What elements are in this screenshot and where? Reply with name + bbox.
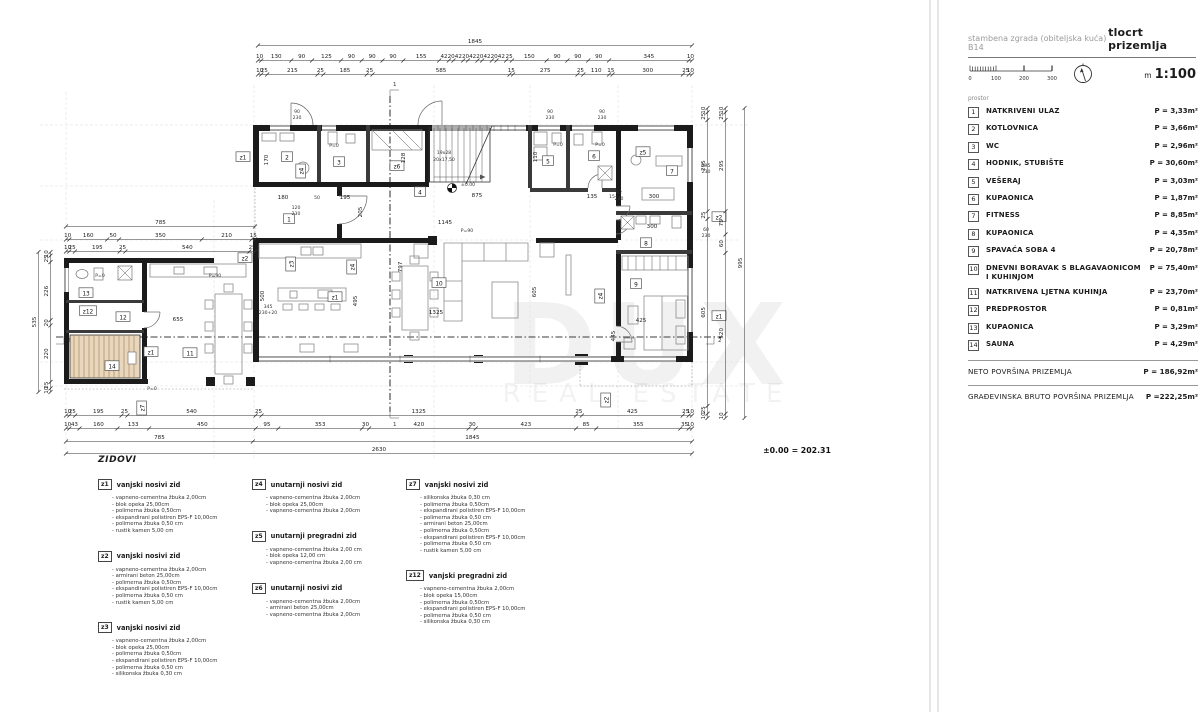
dim-label: 995: [738, 257, 744, 268]
sink: [301, 247, 311, 255]
room-marker-7: 7: [670, 169, 674, 175]
dim-label: 42: [469, 54, 476, 60]
wall-layer: - blok opeka 15,00cm: [420, 593, 554, 600]
wall-type-item: z4unutarnji nosivi zid- vapneno-cementna…: [252, 479, 400, 515]
svg-text:605: 605: [532, 286, 538, 297]
svg-text:P=90: P=90: [461, 228, 474, 234]
room-number: 5: [968, 177, 979, 188]
dining-table: [402, 266, 428, 330]
wall-layer: - vapneno-cementna žbuka 2,00cm: [266, 495, 400, 502]
wall-marker-z4: z4: [598, 292, 604, 299]
dim-label: 420: [413, 422, 424, 428]
dim-label: 10: [719, 412, 725, 420]
dim-label: 10: [701, 106, 707, 114]
dim-label: 42: [498, 54, 505, 60]
room-name: KUPAONICA: [986, 194, 1154, 203]
west-wall-upper: [253, 125, 259, 186]
room-name: WC: [986, 142, 1154, 151]
dim-label: 25: [119, 245, 127, 251]
neto-row: NETO POVRŠINA PRIZEMLJA P = 186,92m²: [968, 360, 1198, 376]
svg-text:797: 797: [398, 261, 404, 272]
svg-text:230: 230: [615, 196, 624, 202]
svg-text:230: 230: [292, 211, 301, 217]
dim-top-total: 1845: [256, 39, 694, 48]
dim-label: 295: [701, 160, 707, 171]
dim-left-col: 1025226202202510: [44, 250, 53, 394]
annex-south-wall: [64, 379, 148, 384]
room-area: P = 8,85m²: [1154, 211, 1198, 220]
room-area: P = 2,96m²: [1154, 142, 1198, 151]
wall-type-name: unutarnji nosivi zid: [271, 481, 343, 489]
rooms-list: 1NATKRIVENI ULAZP = 3,33m²2KOTLOVNICAP =…: [968, 107, 1198, 351]
dim-label: 10: [256, 54, 264, 60]
dim-label: 25: [69, 409, 77, 415]
svg-text:170: 170: [264, 154, 270, 165]
room-area: P = 3,66m²: [1154, 124, 1198, 133]
svg-text:P=90: P=90: [209, 273, 222, 279]
dim-label: 110: [591, 68, 602, 74]
wall-type-name: vanjski nosivi zid: [425, 481, 489, 489]
dim-label: 300: [642, 68, 653, 74]
room-marker-2: 2: [285, 155, 289, 161]
svg-text:90: 90: [547, 109, 553, 115]
drawing-title: tlocrt prizemlja: [1108, 26, 1196, 52]
dim-label: 90: [348, 54, 356, 60]
svg-text:230: 230: [546, 115, 555, 121]
dim-label: 785: [154, 435, 165, 441]
room-number: 7: [968, 211, 979, 222]
dim-label: 520: [719, 328, 725, 339]
dim-label: 1845: [468, 39, 483, 45]
dim-label: 345: [644, 54, 655, 60]
dim-bottom-row-2: 1043160133450953533042030423853553510: [64, 422, 694, 431]
dim-label: 605: [701, 307, 707, 318]
svg-text:230: 230: [598, 115, 607, 121]
wall-type-code: z3: [98, 622, 112, 633]
dim-bottom-row-3: 7851845: [64, 435, 694, 444]
wall-layer: - polimerna žbuka 0,50 cm: [112, 593, 246, 600]
dim-label: 10: [44, 386, 50, 394]
drawing-sheet: { "title_block": { "project": "stambena …: [0, 0, 1200, 712]
room-marker-11: 11: [186, 351, 194, 357]
wall-x618-b: [616, 220, 621, 240]
sauna-heater: [128, 352, 136, 364]
dim-label: 30: [362, 422, 370, 428]
wall-layer: - armirani beton 25,00cm: [266, 605, 400, 612]
washer: [534, 132, 547, 145]
dim-label: 195: [92, 245, 103, 251]
dim-label: 25: [255, 409, 263, 415]
dim-label: 353: [315, 422, 326, 428]
column: [206, 377, 215, 386]
sauna-benches: [70, 335, 140, 378]
room-schedule-header: prostor: [968, 96, 1198, 102]
wall-layer: - silikonska žbuka 0,30 cm: [420, 619, 554, 626]
svg-text:500: 500: [260, 290, 266, 301]
dim-label: 540: [182, 245, 193, 251]
dim-label: 60: [719, 240, 725, 248]
wall-type-code: z6: [252, 583, 266, 594]
room-marker-12: 12: [119, 315, 127, 321]
wardrobe: [622, 256, 688, 270]
walls-legend-title: ZIDOVI: [98, 455, 568, 465]
room-name: SAUNA: [986, 340, 1154, 349]
bar-stool: [315, 304, 324, 310]
wall-layer: - vapneno-cementna žbuka 2,00cm: [112, 495, 246, 502]
room-marker-4: 4: [418, 190, 422, 196]
svg-text:P=0: P=0: [147, 386, 157, 392]
room-number: 13: [968, 323, 979, 334]
dim-label: 25: [719, 112, 725, 120]
corridor-south-wall: [536, 238, 618, 243]
wall-layer: - armirani beton 25,00cm: [420, 521, 554, 528]
wall-type-item: z3vanjski nosivi zid- vapneno-cementna ž…: [98, 622, 246, 678]
dim-label: 1325: [412, 409, 427, 415]
room-number: 6: [968, 194, 979, 205]
wall-layer: - blok opeka 12,00 cm: [266, 553, 400, 560]
wall-type-code: z4: [252, 479, 266, 490]
dim-label: 10: [701, 412, 707, 420]
svg-text:60: 60: [703, 227, 709, 233]
dim-label: 15: [508, 68, 516, 74]
wall-marker-z4: z4: [299, 167, 305, 174]
partition-13-12: [66, 300, 144, 303]
room-name: HODNIK, STUBIŠTE: [986, 159, 1150, 168]
room-row: 14SAUNAP = 4,29m²: [968, 340, 1198, 351]
bath8-south-wall: [616, 250, 692, 254]
svg-text:90: 90: [599, 109, 605, 115]
svg-text:345: 345: [264, 304, 273, 310]
bruto-row: GRAĐEVINSKA BRUTO POVRŠINA PRIZEMLJA P =…: [968, 385, 1198, 401]
dim-label: 295: [719, 160, 725, 171]
dim-label: 185: [340, 68, 351, 74]
wall-type-code: z7: [406, 479, 420, 490]
wall-layer: - polimerna žbuka 0,50cm: [420, 600, 554, 607]
wall-layer: - ekspandirani polistiren EPS-F 10,00cm: [112, 586, 246, 593]
dim-label: 585: [436, 68, 447, 74]
stairs-label-2: 20x17,50: [433, 157, 455, 163]
walls-legend-col-1: z1vanjski nosivi zid- vapneno-cementna ž…: [98, 479, 246, 694]
wall-type-name: vanjski nosivi zid: [117, 624, 181, 632]
dim-label: 215: [287, 68, 298, 74]
dim-label: 275: [540, 68, 551, 74]
svg-text:425: 425: [636, 318, 647, 324]
dim-label: 90: [389, 54, 397, 60]
dim-label: 535: [32, 316, 38, 327]
dim-label: 10: [687, 409, 695, 415]
room-name: FITNESS: [986, 211, 1154, 220]
wall-type-code: z1: [98, 479, 112, 490]
wall-type-item: z12vanjski pregradni zid- vapneno-cement…: [406, 570, 554, 626]
title-block: stambena zgrada (obiteljska kuća) B14 tl…: [968, 26, 1196, 85]
room-area: P = 3,29m²: [1154, 323, 1198, 332]
dim-label: 90: [369, 54, 377, 60]
room-area: P = 0,81m²: [1154, 305, 1198, 314]
wall-layer: - rustik kamen 5,00 cm: [420, 548, 554, 555]
dim-label: 133: [128, 422, 139, 428]
dim-label: 25: [701, 406, 707, 414]
level-value: ±0.00: [461, 182, 475, 188]
wall-type-name: vanjski pregradni zid: [429, 572, 507, 580]
wall-layer: - vapneno-cementna žbuka 2,00cm: [266, 612, 400, 619]
fitness-bench: [656, 156, 682, 166]
scale-tick-200: 200: [1019, 76, 1029, 82]
room-number: 2: [968, 124, 979, 135]
svg-text:655: 655: [173, 317, 184, 323]
wall-x618-c: [616, 254, 621, 326]
watermark: DUX REAL ESTATE: [503, 281, 794, 411]
room-area: P = 23,70m²: [1150, 288, 1198, 297]
room-number: 14: [968, 340, 979, 351]
project-title: stambena zgrada (obiteljska kuća) B14: [968, 34, 1108, 52]
room-area: P = 30,60m²: [1150, 159, 1198, 168]
dim-wing-row-b: 10251952554025: [64, 245, 257, 254]
dim-label: 25: [577, 68, 585, 74]
room-name: KOTLOVNICA: [986, 124, 1154, 133]
wall-marker-z6: z6: [394, 164, 401, 170]
annex-east-wall-a: [142, 258, 147, 312]
wall-layer: - silikonska žbuka 0,30 cm: [420, 495, 554, 502]
armchair: [540, 243, 554, 257]
wall-layer: - polimerna žbuka 0,50cm: [420, 502, 554, 509]
wall-type-code: z12: [406, 570, 424, 581]
dim-label: 25: [701, 112, 707, 120]
dim-label: 160: [93, 422, 104, 428]
dim-label: 75: [719, 219, 725, 227]
svg-text:195: 195: [340, 195, 351, 201]
section-1-top: 1: [393, 82, 397, 88]
svg-text:50: 50: [314, 195, 320, 201]
svg-text:90: 90: [294, 109, 300, 115]
wall-layer: - armirani beton 25,00cm: [112, 573, 246, 580]
north-arrow-icon: [1072, 63, 1094, 85]
svg-text:120: 120: [292, 205, 301, 211]
stairs: 19x28 20x17,50: [429, 126, 492, 184]
dim-label: 15: [607, 68, 615, 74]
partition-3-closet: [366, 125, 370, 182]
wall-marker-z12: z12: [83, 309, 94, 315]
wall-type-item: z7vanjski nosivi zid- silikonska žbuka 0…: [406, 479, 554, 554]
dim-label: 785: [155, 220, 166, 226]
wc: [672, 216, 681, 228]
partition-2-3: [317, 125, 321, 182]
room-area: P = 4,29m²: [1154, 340, 1198, 349]
svg-text:92: 92: [616, 190, 622, 196]
dim-wing-total: 785: [64, 220, 257, 229]
wall-marker-z1: z1: [332, 295, 339, 301]
dim-label: 25: [506, 54, 514, 60]
dim-label: 423: [521, 422, 532, 428]
wall-layer: - polimerna žbuka 0,50cm: [112, 580, 246, 587]
dim-label: 355: [633, 422, 644, 428]
wall-layer: - vapneno-cementna žbuka 2,00cm: [112, 638, 246, 645]
bar-stool: [299, 304, 308, 310]
walls-legend-col-2: z4unutarnji nosivi zid- vapneno-cementna…: [252, 479, 400, 634]
pillar: [428, 236, 437, 245]
dim-label: 50: [110, 233, 118, 239]
dim-label: 90: [574, 54, 582, 60]
planter: [300, 344, 314, 352]
wall-layer: - vapneno-cementna žbuka 2,00cm: [266, 599, 400, 606]
room-number: 12: [968, 305, 979, 316]
wall-layer: - ekspandirani polistiren EPS-F 10,00cm: [420, 606, 554, 613]
wall-type-code: z5: [252, 531, 266, 542]
wall-marker-z5: z5: [640, 150, 647, 156]
wall-layer: - polimerna žbuka 0,50 cm: [420, 515, 554, 522]
room-name: DNEVNI BORAVAK S BLAGAVAONICOM I KUHINJO…: [986, 264, 1150, 282]
room-name: VEŠERAJ: [986, 177, 1154, 186]
dim-label: 10: [719, 106, 725, 114]
scale-tick-300: 300: [1047, 76, 1057, 82]
room-row: 4HODNIK, STUBIŠTEP = 30,60m²: [968, 159, 1198, 170]
room-number: 4: [968, 159, 979, 170]
wall-layer: - ekspandirani polistiren EPS-F 10,00cm: [420, 508, 554, 515]
scale-tick-100: 100: [991, 76, 1001, 82]
dim-label: 1845: [465, 435, 480, 441]
closet: [372, 130, 422, 150]
wall-layer: - polimerna žbuka 0,50cm: [420, 528, 554, 535]
column: [246, 377, 255, 386]
dim-label: 540: [186, 409, 197, 415]
room-number: 11: [968, 288, 979, 299]
wall-marker-z2: z2: [604, 396, 610, 403]
room-row: 13KUPAONICAP = 3,29m²: [968, 323, 1198, 334]
svg-text:445: 445: [611, 330, 617, 341]
wall-type-item: z5unutarnji pregradni zid- vapneno-cemen…: [252, 531, 400, 567]
room-row: 1NATKRIVENI ULAZP = 3,33m²: [968, 107, 1198, 118]
stairs-label-1: 19x28: [437, 150, 451, 156]
dim-label: 25: [317, 68, 325, 74]
svg-text:230+20: 230+20: [259, 310, 278, 316]
room-name: KUPAONICA: [986, 229, 1154, 238]
svg-text:300: 300: [649, 194, 660, 200]
room-marker-9: 9: [634, 282, 638, 288]
room-number: 9: [968, 246, 979, 257]
dim-label: 10: [687, 54, 695, 60]
dim-label: 2630: [372, 447, 387, 453]
dim-label: 195: [93, 409, 104, 415]
dim-label: 15: [250, 233, 258, 239]
dim-label: 130: [271, 54, 282, 60]
walls-legend-col-3: z7vanjski nosivi zid- silikonska žbuka 0…: [406, 479, 554, 642]
room-area: P = 3,33m²: [1154, 107, 1198, 116]
room-name: NATKRIVENI ULAZ: [986, 107, 1154, 116]
wall-marker-z7: z7: [140, 404, 146, 411]
west-wall-lower: [253, 238, 259, 362]
dim-label: 220: [44, 348, 50, 359]
wall-layer: - rustik kamen 5,00 cm: [112, 528, 246, 535]
dim-label: 10: [687, 68, 695, 74]
svg-text:128: 128: [401, 152, 407, 163]
wall-layer: - polimerna žbuka 0,50cm: [112, 651, 246, 658]
scale-bar: 0 100 200 300: [968, 65, 1064, 83]
svg-text:180: 180: [278, 195, 289, 201]
dim-label: 20: [44, 319, 50, 327]
sink: [313, 247, 323, 255]
section-1-bottom: 1: [393, 422, 397, 428]
dim-top-row-b: 1013090125909090155422042204220422042251…: [256, 54, 694, 63]
porch-east-wall-b: [337, 224, 342, 238]
room-row: 11NATKRIVENA LJETNA KUHINJAP = 23,70m²: [968, 288, 1198, 299]
svg-text:P=0: P=0: [95, 273, 105, 279]
bar-stool: [283, 304, 292, 310]
svg-text:P=0: P=0: [553, 142, 563, 148]
wall-layer: - rustik kamen 5,00 cm: [112, 600, 246, 607]
room-name: SPAVAĆA SOBA 4: [986, 246, 1150, 255]
room-row: 6KUPAONICAP = 1,87m²: [968, 194, 1198, 205]
dim-label: 10: [64, 233, 72, 239]
wall-type-name: unutarnji nosivi zid: [271, 584, 343, 592]
svg-text:300: 300: [647, 224, 658, 230]
dim-label: 25: [44, 255, 50, 263]
dim-label: 25: [121, 409, 129, 415]
scale-tick-0: 0: [968, 76, 971, 82]
wall-marker-z3: z3: [289, 260, 295, 267]
room-marker-1: 1: [287, 217, 291, 223]
dim-label: 350: [155, 233, 166, 239]
wall-layer: - vapneno-cementna žbuka 2,00cm: [112, 567, 246, 574]
neto-area: P = 186,92m²: [1143, 367, 1198, 376]
wc: [328, 132, 337, 144]
dim-label: 25: [249, 245, 257, 251]
svg-text:230: 230: [293, 115, 302, 121]
annex-north-wall: [64, 258, 214, 263]
wall-marker-z1: z1: [240, 155, 247, 161]
wall-5-6-south-a: [530, 188, 588, 192]
wall-type-item: z1vanjski nosivi zid- vapneno-cementna ž…: [98, 479, 246, 535]
dim-label: 226: [44, 285, 50, 296]
dim-label: 10: [687, 422, 695, 428]
room-marker-10: 10: [435, 281, 443, 287]
room-number: 1: [968, 107, 979, 118]
bar-stool: [331, 304, 340, 310]
dim-label: 90: [298, 54, 306, 60]
svg-text:205: 205: [358, 206, 364, 217]
room-marker-14: 14: [108, 364, 116, 370]
dim-label: 90: [595, 54, 603, 60]
room-area: P = 4,35m²: [1154, 229, 1198, 238]
annex-west-window: [64, 268, 69, 292]
wall-marker-z1: z1: [148, 350, 155, 356]
level-note: ±0.00 = 202.31: [763, 446, 831, 455]
kitchen-wall: [259, 238, 435, 243]
wall-layer: - polimerna žbuka 0,50 cm: [112, 521, 246, 528]
room-marker-5: 5: [546, 159, 550, 165]
dim-label: 95: [263, 422, 271, 428]
wall-layer: - vapneno-cementna žbuka 2,00 cm: [266, 547, 400, 554]
wall-layer: - vapneno-cementna žbuka 2,00cm: [420, 586, 554, 593]
room-number: 10: [968, 264, 979, 275]
dim-label: 42: [483, 54, 490, 60]
room-row: 7FITNESSP = 8,85m²: [968, 211, 1198, 222]
wall-type-item: z2vanjski nosivi zid- vapneno-cementna ž…: [98, 551, 246, 607]
dim-label: 42: [455, 54, 462, 60]
wall-type-name: unutarnji pregradni zid: [271, 532, 357, 540]
dim-label: 160: [83, 233, 94, 239]
room-row: 9SPAVAĆA SOBA 4P = 20,78m²: [968, 246, 1198, 257]
dim-label: 450: [197, 422, 208, 428]
wall-type-item: z6unutarnji nosivi zid- vapneno-cementna…: [252, 583, 400, 619]
room-row: 3WCP = 2,96m²: [968, 142, 1198, 153]
room-area: P = 3,03m²: [1154, 177, 1198, 186]
bruto-area: P =222,25m²: [1146, 392, 1198, 401]
wall-marker-z1: z1: [716, 314, 723, 320]
dim-label: 42: [440, 54, 447, 60]
room-marker-13: 13: [82, 291, 90, 297]
watermark-line2: REAL ESTATE: [503, 379, 794, 409]
dim-top-row-c: 102521525185255851527525110153002510: [256, 68, 694, 77]
wall-layer: - vapneno-cementna žbuka 2,00cm: [266, 508, 400, 515]
